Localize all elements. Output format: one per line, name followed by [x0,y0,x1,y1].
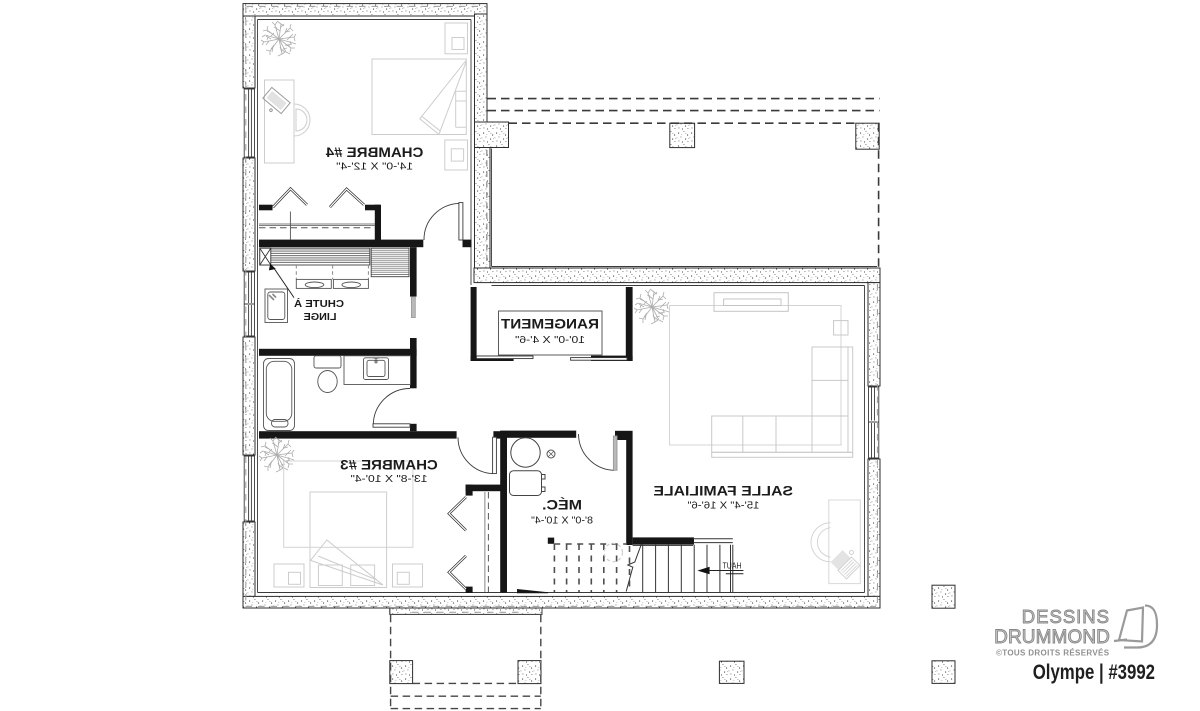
svg-text:CHUTE À: CHUTE À [294,297,344,310]
svg-text:14'-0" X 12'-4": 14'-0" X 12'-4" [336,161,413,173]
svg-text:©TOUS DROITS RÉSERVÉS: ©TOUS DROITS RÉSERVÉS [996,649,1110,658]
svg-text:13'-8" X 10'-4": 13'-8" X 10'-4" [350,473,427,485]
svg-text:MÉC.: MÉC. [542,496,582,512]
svg-text:CHAMBRE #3: CHAMBRE #3 [340,456,438,472]
svg-text:8'-0" X 10'-4": 8'-0" X 10'-4" [531,515,593,527]
svg-text:DESSINS: DESSINS [1022,606,1110,627]
svg-text:Olympe | #3992: Olympe | #3992 [1033,661,1155,684]
svg-text:CHAMBRE #4: CHAMBRE #4 [326,144,424,160]
svg-text:DRUMMOND: DRUMMOND [994,627,1110,648]
svg-text:RANGEMENT: RANGEMENT [501,315,599,331]
svg-text:HAUT: HAUT [723,561,742,571]
svg-text:15'-4" X 16'-6": 15'-4" X 16'-6" [687,500,759,512]
svg-text:10'-0" X 4'-6": 10'-0" X 4'-6" [515,334,585,346]
svg-text:SALLE FAMILIALE: SALLE FAMILIALE [653,483,793,499]
svg-text:LINGE: LINGE [304,311,337,323]
